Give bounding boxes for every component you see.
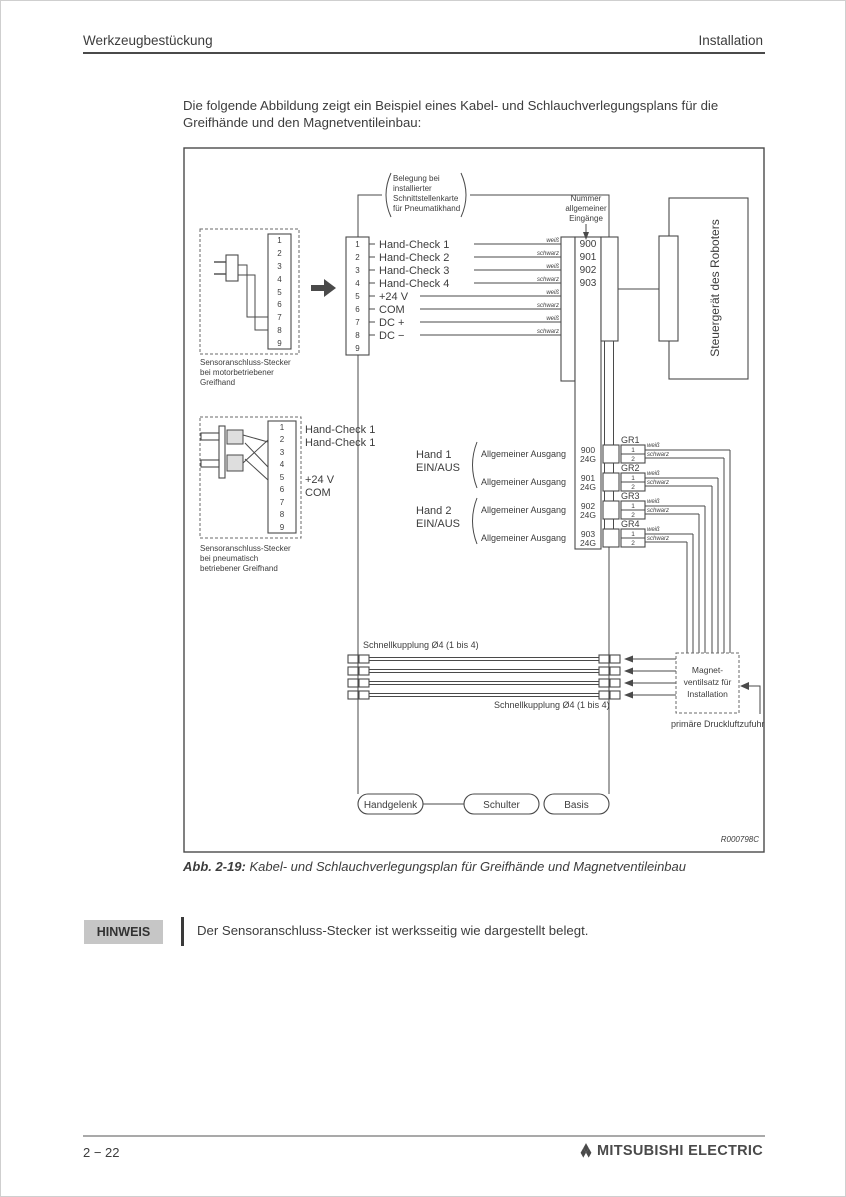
connector-caption: betriebener Greifhand bbox=[200, 564, 278, 573]
valve-set-box: Magnet- ventilsatz für Installation prim… bbox=[671, 653, 765, 729]
connector-caption: Sensoranschluss-Stecker bbox=[200, 544, 291, 553]
brand-name: MITSUBISHI ELECTRIC bbox=[597, 1143, 763, 1159]
signal-label: Hand-Check 3 bbox=[379, 265, 449, 277]
hinweis-badge: HINWEIS bbox=[84, 920, 163, 944]
signal-label: COM bbox=[379, 304, 405, 316]
figure-caption-text: Kabel- und Schlauchverlegungsplan für Gr… bbox=[249, 859, 686, 874]
wire-color-label: weiß bbox=[647, 499, 660, 505]
sensor-connector-pneumatic: 1 2 3 4 5 6 7 8 9 Sensoranschluss-Stecke… bbox=[200, 417, 375, 573]
output-ground: 24G bbox=[580, 510, 596, 520]
output-label: Allgemeiner Ausgang bbox=[481, 449, 566, 459]
valve-to-coupling-arrows bbox=[624, 656, 676, 699]
pin-number: 9 bbox=[277, 339, 282, 348]
note-line: Schnittstellenkarte bbox=[393, 194, 459, 203]
figure-caption-label: Abb. 2-19: bbox=[183, 859, 246, 874]
signal-label: DC − bbox=[379, 330, 404, 342]
sensor-connector-motor: 1 2 3 4 5 6 7 8 9 Sensoranschluss-Stecke… bbox=[200, 229, 299, 387]
wire-color-label: weiß bbox=[546, 290, 559, 296]
brand-logo: MITSUBISHI ELECTRIC bbox=[577, 1142, 763, 1160]
signal-label: DC + bbox=[379, 317, 404, 329]
wire-color-label: schwarz bbox=[647, 536, 669, 542]
hand-state: EIN/AUS bbox=[416, 462, 460, 474]
pin-number: 9 bbox=[280, 523, 285, 532]
pin-number: 8 bbox=[277, 326, 282, 335]
valve-box-line: Magnet- bbox=[692, 665, 723, 675]
pin-number: 7 bbox=[355, 318, 360, 327]
wire-color-label: schwarz bbox=[537, 277, 559, 283]
quick-coupling-label-top: Schnellkupplung Ø4 (1 bis 4) bbox=[363, 640, 479, 650]
gr-pin: 1 bbox=[631, 503, 635, 510]
pin-number: 7 bbox=[280, 498, 285, 507]
figure-caption: Abb. 2-19: Kabel- und Schlauchverlegungs… bbox=[183, 859, 783, 874]
signal-label: Hand-Check 2 bbox=[379, 252, 449, 264]
pin-number: 6 bbox=[280, 485, 285, 494]
input-number: 902 bbox=[580, 265, 597, 276]
pin-number: 3 bbox=[280, 448, 285, 457]
pin-number: 7 bbox=[277, 313, 282, 322]
general-outputs: Allgemeiner Ausgang 900 24G 1 2 GR1 weiß… bbox=[481, 435, 730, 653]
pin-number: 2 bbox=[355, 253, 360, 262]
pin-number: 5 bbox=[277, 288, 282, 297]
wire-color-label: weiß bbox=[647, 471, 660, 477]
running-header-right: Installation bbox=[698, 33, 763, 48]
input-header: Nummer bbox=[571, 194, 602, 203]
note-line: für Pneumatikhand bbox=[393, 204, 460, 213]
gr-pin: 2 bbox=[631, 540, 635, 547]
output-ground: 24G bbox=[580, 538, 596, 548]
pin-number: 9 bbox=[355, 344, 360, 353]
signal-label: Hand-Check 1 bbox=[305, 424, 375, 436]
signal-label: +24 V bbox=[305, 474, 335, 486]
input-header: Eingänge bbox=[569, 214, 603, 223]
signal-label: Hand-Check 1 bbox=[305, 437, 375, 449]
wire-color-label: weiß bbox=[647, 527, 660, 533]
gr-pin: 1 bbox=[631, 531, 635, 538]
pneumatic-tubes: Schnellkupplung Ø4 (1 bis 4) Schnellkupp… bbox=[348, 640, 676, 710]
input-number: 903 bbox=[580, 278, 597, 289]
robot-controller: Steuergerät des Roboters bbox=[618, 198, 748, 379]
robot-arm-segments: Handgelenk Schulter Basis bbox=[358, 794, 609, 814]
intro-paragraph: Die folgende Abbildung zeigt ein Beispie… bbox=[183, 98, 775, 131]
gr-pin: 1 bbox=[631, 475, 635, 482]
pin-number: 5 bbox=[355, 292, 360, 301]
connector-caption: Sensoranschluss-Stecker bbox=[200, 358, 291, 367]
gr-label: GR2 bbox=[621, 463, 640, 473]
gr-pin: 2 bbox=[631, 456, 635, 463]
arm-segment-shoulder: Schulter bbox=[483, 800, 520, 811]
pin-number: 5 bbox=[280, 473, 285, 482]
gr-pin: 2 bbox=[631, 484, 635, 491]
gr-pin: 2 bbox=[631, 512, 635, 519]
note-line: installierter bbox=[393, 184, 432, 193]
pin-number: 2 bbox=[280, 435, 285, 444]
page-number: 2 − 22 bbox=[83, 1145, 120, 1160]
hand-state: EIN/AUS bbox=[416, 518, 460, 530]
wire-color-label: weiß bbox=[546, 238, 559, 244]
wire-color-label: schwarz bbox=[647, 480, 669, 486]
hand-name: Hand 2 bbox=[416, 505, 451, 517]
pin-number: 6 bbox=[355, 305, 360, 314]
valve-box-line: ventilsatz für bbox=[684, 677, 732, 687]
gr-pin: 1 bbox=[631, 447, 635, 454]
pin-number: 1 bbox=[355, 240, 360, 249]
note-line: Belegung bei bbox=[393, 174, 440, 183]
output-label: Allgemeiner Ausgang bbox=[481, 477, 566, 487]
pin-number: 4 bbox=[280, 460, 285, 469]
pin-ticks bbox=[369, 244, 375, 335]
signal-label: Hand-Check 4 bbox=[379, 278, 449, 290]
valve-connector-icon bbox=[201, 426, 268, 480]
input-header: allgemeiner bbox=[565, 204, 607, 213]
connector-caption: bei pneumatisch bbox=[200, 554, 258, 563]
wire-color-label: weiß bbox=[546, 316, 559, 322]
plug-icon bbox=[214, 255, 268, 330]
footer-rule bbox=[83, 1135, 765, 1137]
air-supply-label: primäre Druckluftzufuhr bbox=[671, 719, 765, 729]
gr-label: GR3 bbox=[621, 491, 640, 501]
input-number: 900 bbox=[580, 239, 597, 250]
pin-number: 8 bbox=[355, 331, 360, 340]
pin-number: 6 bbox=[277, 300, 282, 309]
wire-color-label: weiß bbox=[647, 443, 660, 449]
pin-number: 1 bbox=[277, 236, 282, 245]
pin-number: 8 bbox=[280, 510, 285, 519]
gr-label: GR1 bbox=[621, 435, 640, 445]
wiring-diagram: Belegung bei installierter Schnittstelle… bbox=[183, 147, 765, 853]
connector-caption: bei motorbetriebener bbox=[200, 368, 274, 377]
input-number: 901 bbox=[580, 252, 597, 263]
output-label: Allgemeiner Ausgang bbox=[481, 505, 566, 515]
right-arrow-icon bbox=[311, 279, 336, 297]
arm-segment-wrist: Handgelenk bbox=[364, 800, 418, 811]
pin-number: 4 bbox=[355, 279, 360, 288]
pin-number: 1 bbox=[280, 423, 285, 432]
connector-caption: Greifhand bbox=[200, 378, 235, 387]
controller-label: Steuergerät des Roboters bbox=[708, 219, 722, 356]
pin-number: 3 bbox=[355, 266, 360, 275]
pin-number: 2 bbox=[277, 249, 282, 258]
running-header-left: Werkzeugbestückung bbox=[83, 33, 213, 48]
wire-color-label: schwarz bbox=[537, 303, 559, 309]
wire-color-label: weiß bbox=[546, 264, 559, 270]
output-ground: 24G bbox=[580, 482, 596, 492]
signal-label: +24 V bbox=[379, 291, 409, 303]
valve-box-line: Installation bbox=[687, 689, 728, 699]
hand-name: Hand 1 bbox=[416, 449, 451, 461]
wire-color-label: schwarz bbox=[647, 508, 669, 514]
mitsubishi-diamonds-icon bbox=[577, 1142, 595, 1160]
air-supply-arrow-icon bbox=[740, 682, 749, 690]
wire-color-label: schwarz bbox=[537, 329, 559, 335]
wire-color-label: schwarz bbox=[647, 452, 669, 458]
hand-switch-labels: Hand 1 EIN/AUS Hand 2 EIN/AUS bbox=[416, 442, 477, 544]
hinweis-text: Der Sensoranschluss-Stecker ist werkssei… bbox=[197, 923, 757, 938]
manual-page: Werkzeugbestückung Installation Die folg… bbox=[0, 0, 846, 1197]
signal-label: Hand-Check 1 bbox=[379, 239, 449, 251]
gr-label: GR4 bbox=[621, 519, 640, 529]
controller-input-columns: 900 901 902 903 Nummer allgemeiner Eingä… bbox=[561, 194, 618, 549]
quick-couplings bbox=[348, 655, 620, 699]
pin-number: 4 bbox=[277, 275, 282, 284]
quick-coupling-label-bottom: Schnellkupplung Ø4 (1 bis 4) bbox=[494, 700, 610, 710]
output-ground: 24G bbox=[580, 454, 596, 464]
header-rule bbox=[83, 52, 765, 54]
signal-label: COM bbox=[305, 487, 331, 499]
drawing-ref: R000798C bbox=[721, 835, 759, 844]
hinweis-bar bbox=[181, 917, 184, 946]
wire-color-label: schwarz bbox=[537, 251, 559, 257]
pin-number: 3 bbox=[277, 262, 282, 271]
arm-segment-base: Basis bbox=[564, 800, 588, 811]
output-label: Allgemeiner Ausgang bbox=[481, 533, 566, 543]
